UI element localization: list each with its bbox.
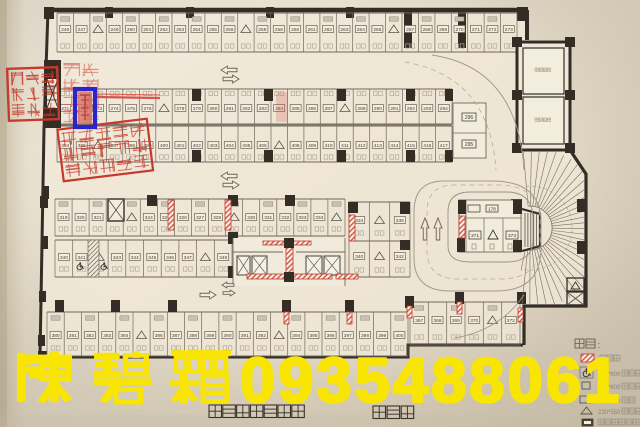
svg-text:324: 324 [145,215,153,221]
svg-text:286: 286 [308,106,316,112]
svg-text:278: 278 [176,106,184,112]
svg-text:417: 417 [440,143,448,149]
svg-text:279: 279 [193,106,201,112]
svg-text:262: 262 [324,27,332,33]
svg-text:271: 271 [61,106,69,112]
svg-text:331: 331 [264,215,272,221]
svg-text:332: 332 [281,215,289,221]
svg-text:410: 410 [325,143,333,149]
svg-text:247: 247 [78,27,86,33]
svg-text:404: 404 [226,143,234,149]
svg-text:372: 372 [507,318,515,324]
svg-text:327: 327 [196,215,204,221]
svg-text:383: 383 [103,333,111,339]
svg-text:390: 390 [223,333,231,339]
svg-text:414: 414 [390,143,398,149]
svg-text:370: 370 [470,318,478,324]
svg-text:387: 387 [172,333,180,339]
svg-text:406: 406 [259,143,267,149]
svg-text:384: 384 [120,333,128,339]
svg-text:261: 261 [308,27,316,33]
svg-text:399: 399 [378,333,386,339]
svg-text:321: 321 [94,215,102,221]
svg-text:292: 292 [407,106,415,112]
svg-text:285: 285 [292,106,300,112]
svg-text:336: 336 [396,218,404,224]
svg-text:275: 275 [127,106,135,112]
svg-text:345: 345 [148,255,156,261]
svg-text:260: 260 [291,27,299,33]
svg-text:296: 296 [465,115,474,121]
svg-text:334: 334 [355,218,363,224]
svg-text:251: 251 [143,27,151,33]
svg-text:369: 369 [452,318,460,324]
svg-text:283: 283 [259,106,267,112]
svg-text:386: 386 [155,333,163,339]
svg-text:340: 340 [355,254,363,260]
svg-text:264: 264 [357,27,365,33]
svg-text:382: 382 [86,333,94,339]
svg-text:253: 253 [176,27,184,33]
svg-text:272: 272 [488,27,496,33]
svg-text:274: 274 [111,106,119,112]
svg-text:373: 373 [508,233,516,239]
svg-text:326: 326 [179,215,187,221]
svg-text:380: 380 [52,333,60,339]
svg-text:344: 344 [131,255,139,261]
svg-text:402: 402 [193,143,201,149]
svg-text:416: 416 [423,143,431,149]
svg-text:256: 256 [225,27,233,33]
svg-text:413: 413 [374,143,382,149]
svg-text:250: 250 [127,27,135,33]
svg-text:252: 252 [160,27,168,33]
svg-text:400: 400 [395,333,403,339]
svg-text:269: 269 [439,27,447,33]
svg-text:398: 398 [361,333,369,339]
svg-text:347: 347 [184,255,192,261]
svg-text:295: 295 [465,142,474,148]
svg-text:415: 415 [407,143,415,149]
svg-text:267: 267 [406,27,414,33]
svg-text:367: 367 [415,318,423,324]
svg-text:258: 258 [258,27,266,33]
svg-text:389: 389 [206,333,214,339]
svg-text:349: 349 [219,255,227,261]
svg-text:392: 392 [258,333,266,339]
svg-text:394: 394 [61,143,69,149]
svg-text:342: 342 [396,254,404,260]
svg-text:282: 282 [242,106,250,112]
svg-text:294: 294 [440,106,448,112]
svg-text:328: 328 [213,215,221,221]
svg-text:340: 340 [60,255,68,261]
svg-text:333: 333 [298,215,306,221]
svg-text:341: 341 [77,255,85,261]
svg-text:293: 293 [423,106,431,112]
svg-text:254: 254 [193,27,201,33]
svg-text:259: 259 [275,27,283,33]
svg-text:0935488061: 0935488061 [240,346,622,416]
svg-text:397: 397 [344,333,352,339]
svg-text:401: 401 [176,143,184,149]
svg-text:320: 320 [77,215,85,221]
svg-text:388: 388 [189,333,197,339]
svg-text:289: 289 [357,106,365,112]
svg-text:287: 287 [325,106,333,112]
svg-text:368: 368 [433,318,441,324]
svg-text:281: 281 [226,106,234,112]
svg-text:268: 268 [423,27,431,33]
svg-text:280: 280 [209,106,217,112]
svg-text:249: 249 [110,27,118,33]
svg-text:319: 319 [59,215,67,221]
svg-text:346: 346 [166,255,174,261]
svg-text:400: 400 [160,143,168,149]
svg-text:395: 395 [309,333,317,339]
svg-text:246: 246 [61,27,69,33]
svg-text:371: 371 [471,233,479,239]
svg-text:403: 403 [209,143,217,149]
svg-text:271: 271 [472,27,480,33]
svg-text:290: 290 [374,106,382,112]
svg-text:276: 276 [143,106,151,112]
svg-text:334: 334 [315,215,323,221]
svg-text:409: 409 [308,143,316,149]
svg-text:411: 411 [341,143,349,149]
svg-text:273: 273 [505,27,513,33]
svg-text:391: 391 [241,333,249,339]
svg-text:330: 330 [247,215,255,221]
svg-text:178: 178 [488,207,496,212]
svg-text:412: 412 [357,143,365,149]
svg-text:394: 394 [292,333,300,339]
svg-text:396: 396 [327,333,335,339]
svg-text:408: 408 [292,143,300,149]
svg-text:263: 263 [340,27,348,33]
svg-text:381: 381 [69,333,77,339]
svg-text:255: 255 [209,27,217,33]
svg-text:405: 405 [242,143,250,149]
svg-text:265: 265 [373,27,381,33]
svg-text:291: 291 [390,106,398,112]
svg-text:270: 270 [455,27,463,33]
svg-text:343: 343 [113,255,121,261]
